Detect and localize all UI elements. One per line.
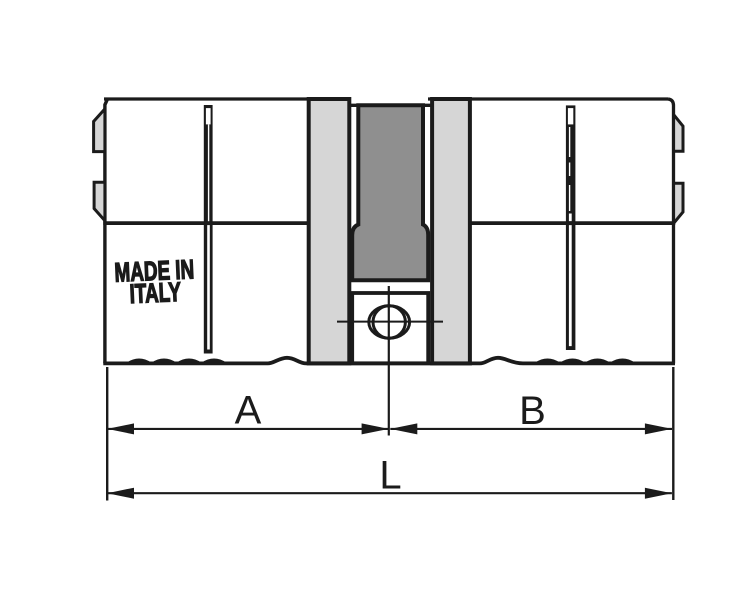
svg-text:B: B (519, 389, 546, 433)
svg-text:L: L (379, 454, 401, 498)
svg-text:A: A (235, 389, 262, 433)
svg-text:ITALY: ITALY (129, 277, 182, 309)
